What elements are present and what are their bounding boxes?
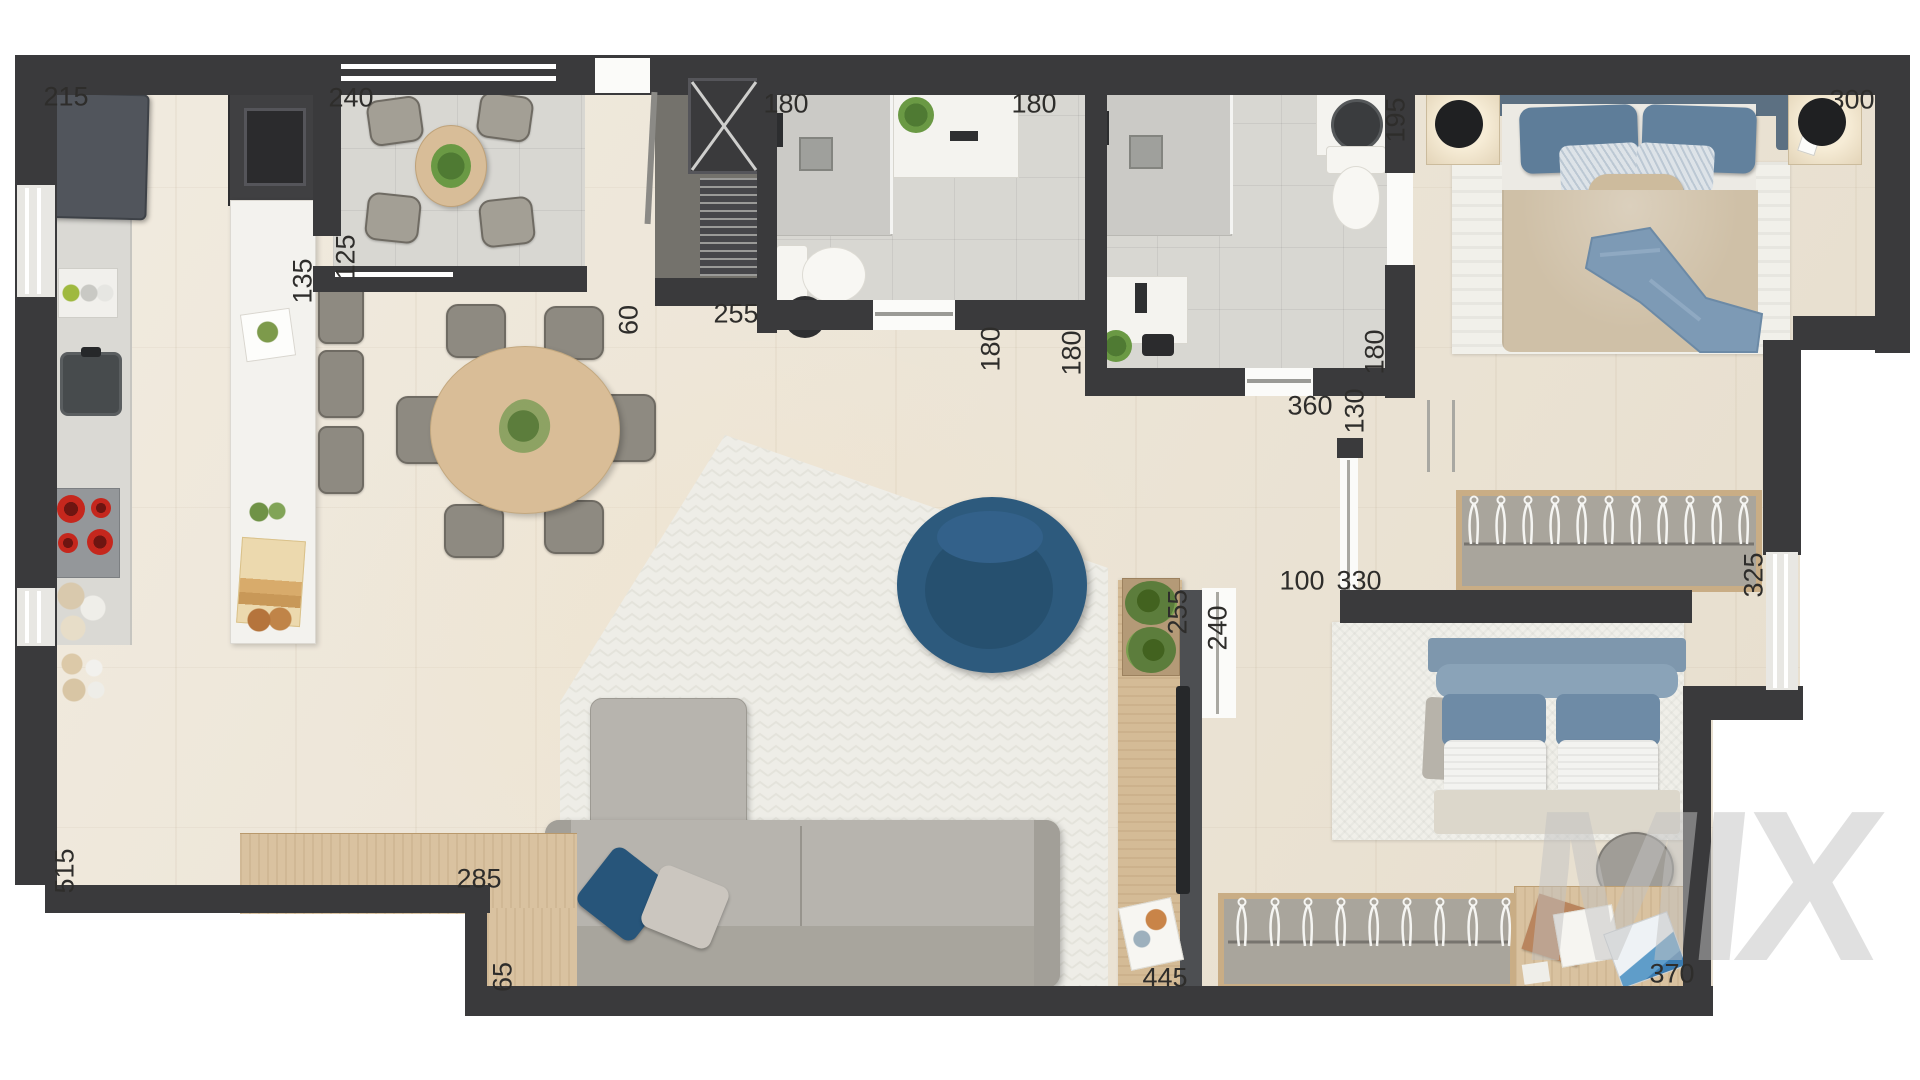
dimension-label-325: 325 <box>1739 552 1770 597</box>
dish-rack <box>58 268 118 318</box>
dining-chair <box>444 504 504 558</box>
dimension-label-285: 285 <box>456 864 501 895</box>
desk-note <box>1522 961 1551 984</box>
dimension-label-445: 445 <box>1142 963 1187 994</box>
window-glass-line <box>1773 554 1777 688</box>
bath1-vanity <box>893 92 1019 178</box>
table-centerpiece-plant <box>499 399 553 459</box>
burner <box>57 495 85 523</box>
burner <box>91 498 111 518</box>
phone <box>1797 124 1823 156</box>
dimension-label-195: 195 <box>1381 97 1412 142</box>
shower-floor <box>1098 92 1232 236</box>
bed2-pillow-blue <box>1556 694 1660 746</box>
kitchen-sink <box>60 352 122 416</box>
balcony-chair <box>478 195 537 248</box>
armchair-cushion <box>937 511 1043 563</box>
dimension-label-255: 255 <box>713 299 758 330</box>
dimension-label-180: 180 <box>1057 330 1088 375</box>
wall-right-step-upper <box>1793 316 1910 350</box>
tall-cabinet-oven <box>228 86 320 206</box>
dimension-label-215: 215 <box>43 82 88 113</box>
dimension-label-515: 515 <box>50 848 81 893</box>
wall-right-master <box>1875 63 1910 353</box>
bar-stool <box>318 350 364 418</box>
dimension-label-125: 125 <box>331 234 362 279</box>
dimension-label-240: 240 <box>1203 605 1234 650</box>
master-bed <box>1468 86 1790 354</box>
dimension-label-180: 180 <box>763 89 808 120</box>
floor-plan-render: 2152401251351801801953002556018018018036… <box>0 0 1920 1080</box>
door-leaf <box>1427 400 1430 472</box>
shower-drain <box>799 137 833 171</box>
round-basin <box>1331 99 1383 151</box>
window-glass-line <box>25 591 29 643</box>
lamp-icon <box>1435 100 1483 148</box>
window-glass-line <box>37 188 41 294</box>
sofa-seam <box>800 826 802 926</box>
dimension-label-360: 360 <box>1287 391 1332 422</box>
service-shaft <box>688 78 760 174</box>
cooktop <box>50 488 120 578</box>
wall-right-closet <box>1763 340 1801 555</box>
bedroom2-bed <box>1428 638 1686 834</box>
shower-glass <box>1230 92 1233 234</box>
balcony-chair <box>365 94 425 147</box>
sofa-arm-right <box>1034 820 1060 988</box>
cookbook <box>240 308 296 362</box>
wall-bath-divider <box>1085 63 1107 373</box>
dimension-label-300: 300 <box>1829 85 1874 116</box>
dimension-label-370: 370 <box>1649 959 1694 990</box>
exterior-right-lower <box>1713 720 1920 1080</box>
dimension-label-240: 240 <box>328 83 373 114</box>
door-leaf <box>875 312 953 316</box>
shower-drain <box>1129 135 1163 169</box>
dining-table <box>430 346 620 514</box>
wall-bath2-bottom-left <box>1085 368 1245 396</box>
window-glass-line <box>25 188 29 294</box>
balcony-window-line <box>332 76 556 81</box>
balcony-table <box>415 125 487 207</box>
bath1-door-gap <box>873 300 955 330</box>
bedroom2-closet <box>1218 893 1516 990</box>
balcony-chair <box>364 191 423 244</box>
bed-duvet <box>1502 190 1758 352</box>
dimension-label-180: 180 <box>1011 89 1056 120</box>
window-glass-line <box>37 591 41 643</box>
oven-nook <box>244 108 306 186</box>
island-greens <box>249 501 289 523</box>
master-wardrobe <box>1456 490 1762 592</box>
burner <box>87 529 113 555</box>
entry-door-gap <box>595 58 650 93</box>
burner <box>58 533 78 553</box>
bed2-pillow-blue <box>1442 694 1546 746</box>
kitchen-cups <box>58 652 106 704</box>
bed2-body <box>1434 790 1680 834</box>
armchair <box>897 497 1087 673</box>
window-left-upper <box>17 185 55 297</box>
master-door-gap <box>1387 173 1413 265</box>
nightstand <box>1426 93 1500 165</box>
dimension-label-180: 180 <box>1360 329 1391 374</box>
dimension-label-255: 255 <box>1163 589 1194 634</box>
vanity-plant <box>898 97 934 133</box>
balcony-chair <box>475 90 535 143</box>
sink-faucet-icon <box>81 347 101 357</box>
toilet <box>1324 146 1386 236</box>
dimension-label-135: 135 <box>288 258 319 303</box>
dimension-label-65: 65 <box>488 962 519 992</box>
toilet <box>776 243 868 305</box>
window-glass-line <box>1784 554 1788 688</box>
balcony-window-line <box>332 64 556 69</box>
hall-wall-stub <box>1337 438 1363 458</box>
window-left-lower <box>17 588 55 646</box>
dimension-label-100: 100 <box>1279 566 1324 597</box>
vanity-faucet-icon <box>950 131 978 141</box>
wall-closet-bottom <box>1340 590 1692 623</box>
dimension-label-330: 330 <box>1336 566 1381 597</box>
vanity-tray <box>1142 334 1174 356</box>
dimension-label-180: 180 <box>976 326 1007 371</box>
door-leaf <box>1247 379 1311 383</box>
bar-stool <box>318 426 364 494</box>
sofa-chaise <box>590 698 747 832</box>
balcony-plant <box>431 144 471 188</box>
wall-bottom-upper <box>45 885 490 913</box>
louver-vent <box>700 178 762 276</box>
door-leaf <box>1452 400 1455 472</box>
kitchen-utensils <box>55 580 107 652</box>
dimension-label-60: 60 <box>614 305 645 335</box>
dimension-label-130: 130 <box>1340 388 1371 433</box>
cookies <box>247 605 293 635</box>
tv-screen <box>1176 686 1190 894</box>
wall-right-step-lower <box>1683 686 1803 720</box>
bed2-long-pillow <box>1436 664 1678 698</box>
vanity-faucet-icon <box>1135 283 1147 313</box>
wall-bottom-lower <box>465 986 1713 1016</box>
window-right-closet <box>1766 552 1798 690</box>
wall-bath1-bottom-left <box>768 300 873 330</box>
